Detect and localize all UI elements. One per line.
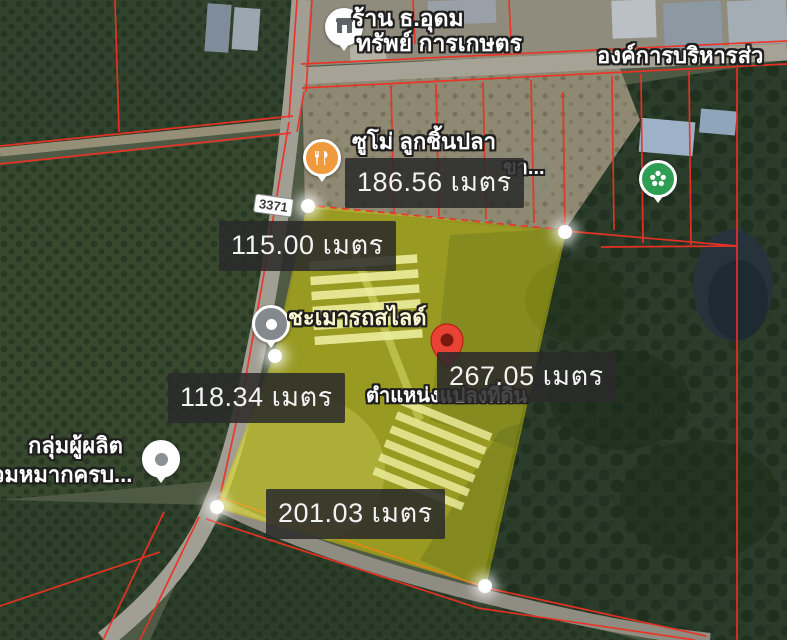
map-viewport[interactable]: 3371 ร้าน ธ.อุดม ทรัพย์ การเกษตร องค์กา xyxy=(0,0,787,640)
restaurant-label[interactable]: ซูโม่ ลูกชิ้นปลา xyxy=(352,130,496,153)
storefront-icon xyxy=(337,21,352,33)
measurement-left: 118.34 เมตร xyxy=(168,373,345,423)
plot-vertex-top-left[interactable] xyxy=(301,199,315,213)
restaurant-pin-icon[interactable] xyxy=(303,139,341,177)
car-slide-pin-icon[interactable] xyxy=(252,305,290,343)
dot-icon xyxy=(266,319,277,330)
car-slide-label[interactable]: ชะเมารถสไลด์ xyxy=(288,306,427,329)
plot-vertex-top-right[interactable] xyxy=(558,225,572,239)
dot-icon xyxy=(155,453,168,466)
producer-group-label-line2[interactable]: วมหมากครบ... xyxy=(0,463,132,486)
producer-group-label-line1[interactable]: กลุ่มผู้ผลิต xyxy=(28,434,123,457)
measurement-top: 186.56 เมตร xyxy=(345,158,524,208)
garden-pin-icon[interactable] xyxy=(639,160,677,198)
measurement-right: 267.05 เมตร xyxy=(437,352,616,402)
shop-label-line1[interactable]: ร้าน ธ.อุดม xyxy=(352,6,464,30)
plot-vertex-bottom-left[interactable] xyxy=(210,500,224,514)
flower-icon xyxy=(649,170,667,188)
measurement-upper-left: 115.00 เมตร xyxy=(219,221,396,271)
plot-vertex-bottom[interactable] xyxy=(478,579,492,593)
measurement-bottom: 201.03 เมตร xyxy=(266,489,445,539)
admin-org-label[interactable]: องค์การบริหารส่ว xyxy=(597,44,763,67)
fork-knife-icon xyxy=(314,150,330,166)
shop-label-line2[interactable]: ทรัพย์ การเกษตร xyxy=(356,31,522,55)
producer-group-pin-icon[interactable] xyxy=(142,440,180,478)
